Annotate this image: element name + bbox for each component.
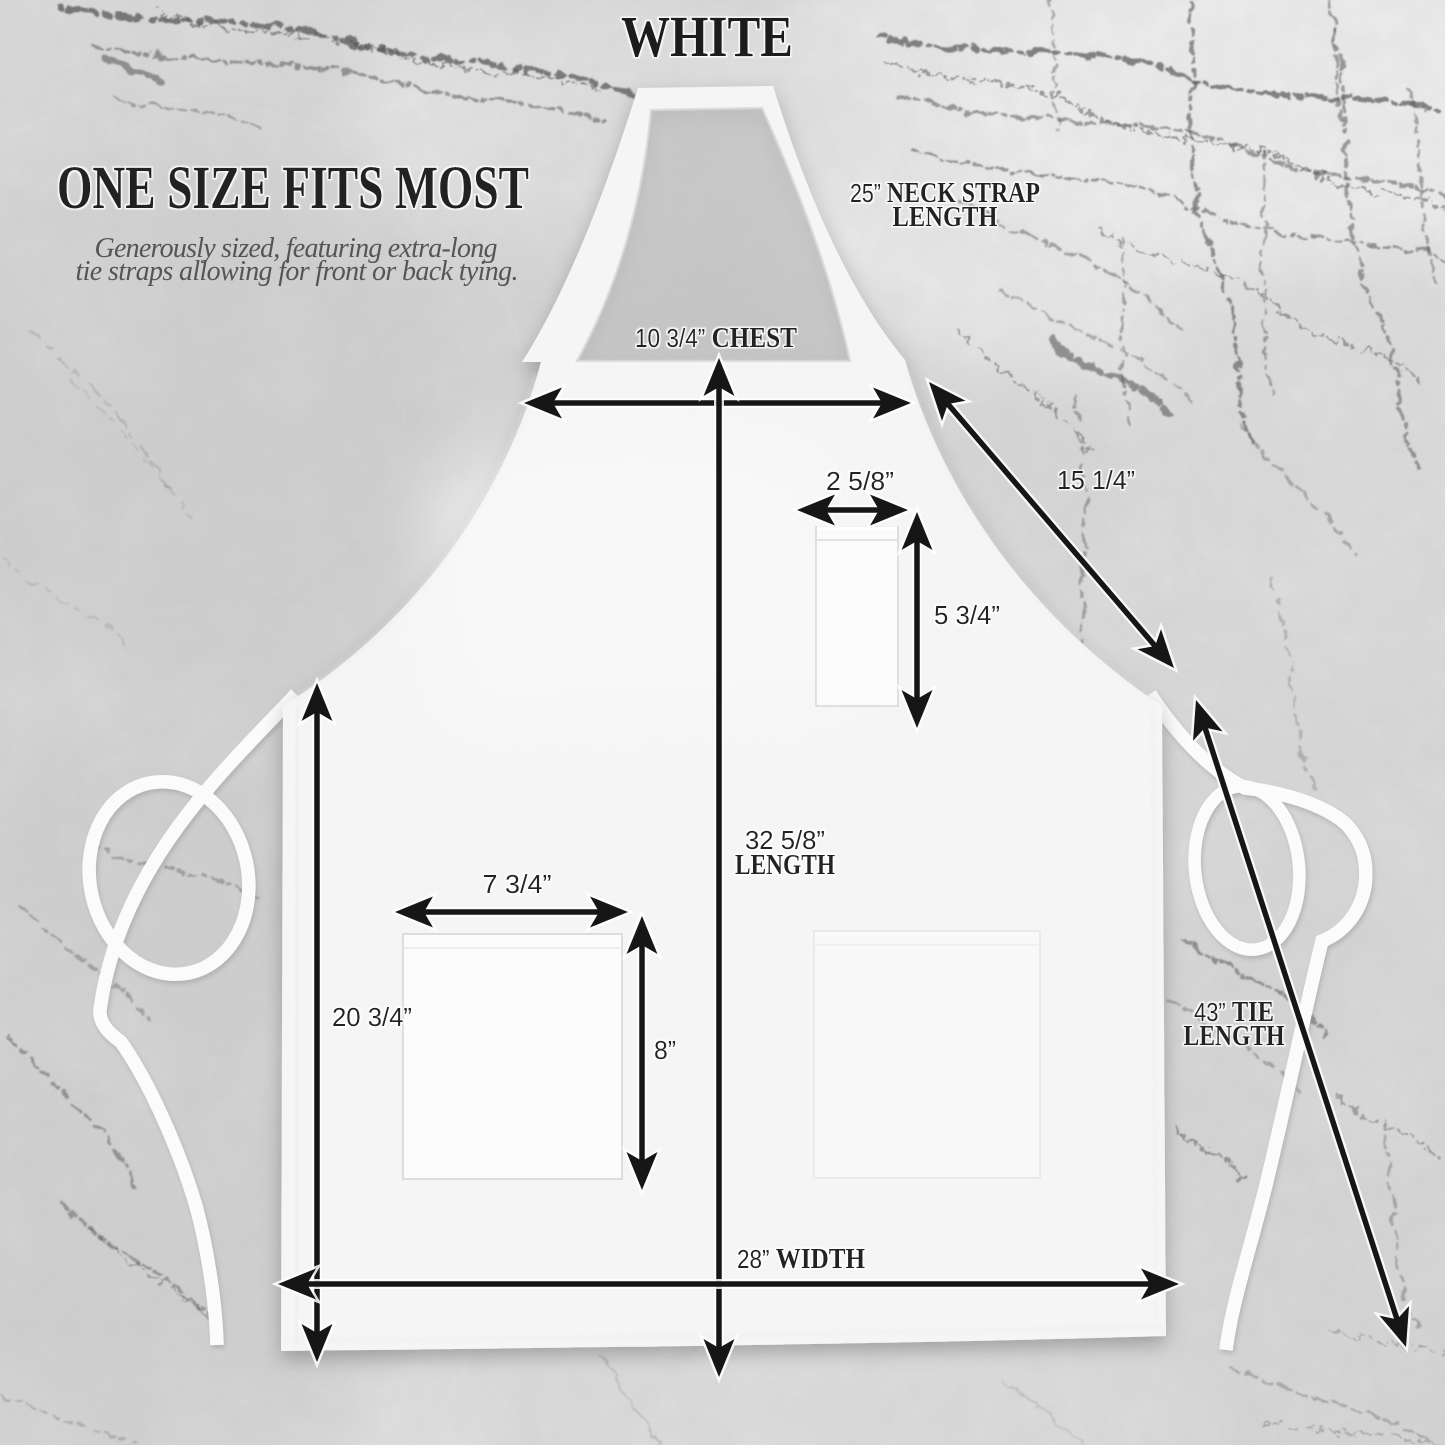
svg-text:20 3/4”: 20 3/4” — [332, 1002, 412, 1032]
svg-text:2 5/8”: 2 5/8” — [826, 466, 894, 496]
svg-text:LENGTH: LENGTH — [735, 849, 835, 881]
svg-text:7 3/4”: 7 3/4” — [483, 869, 552, 899]
svg-text:28” WIDTH: 28” WIDTH — [737, 1243, 865, 1275]
svg-text:8”: 8” — [654, 1035, 676, 1065]
svg-text:WHITE: WHITE — [621, 4, 793, 69]
svg-text:LENGTH: LENGTH — [1184, 1020, 1285, 1052]
svg-text:ONE SIZE FITS MOST: ONE SIZE FITS MOST — [57, 155, 529, 222]
svg-text:tie straps allowing for front: tie straps allowing for front or back ty… — [76, 256, 519, 287]
svg-text:5 3/4”: 5 3/4” — [934, 600, 1000, 630]
svg-text:LENGTH: LENGTH — [893, 201, 998, 233]
svg-text:15 1/4”: 15 1/4” — [1057, 465, 1135, 495]
svg-text:10 3/4” CHEST: 10 3/4” CHEST — [635, 322, 797, 354]
